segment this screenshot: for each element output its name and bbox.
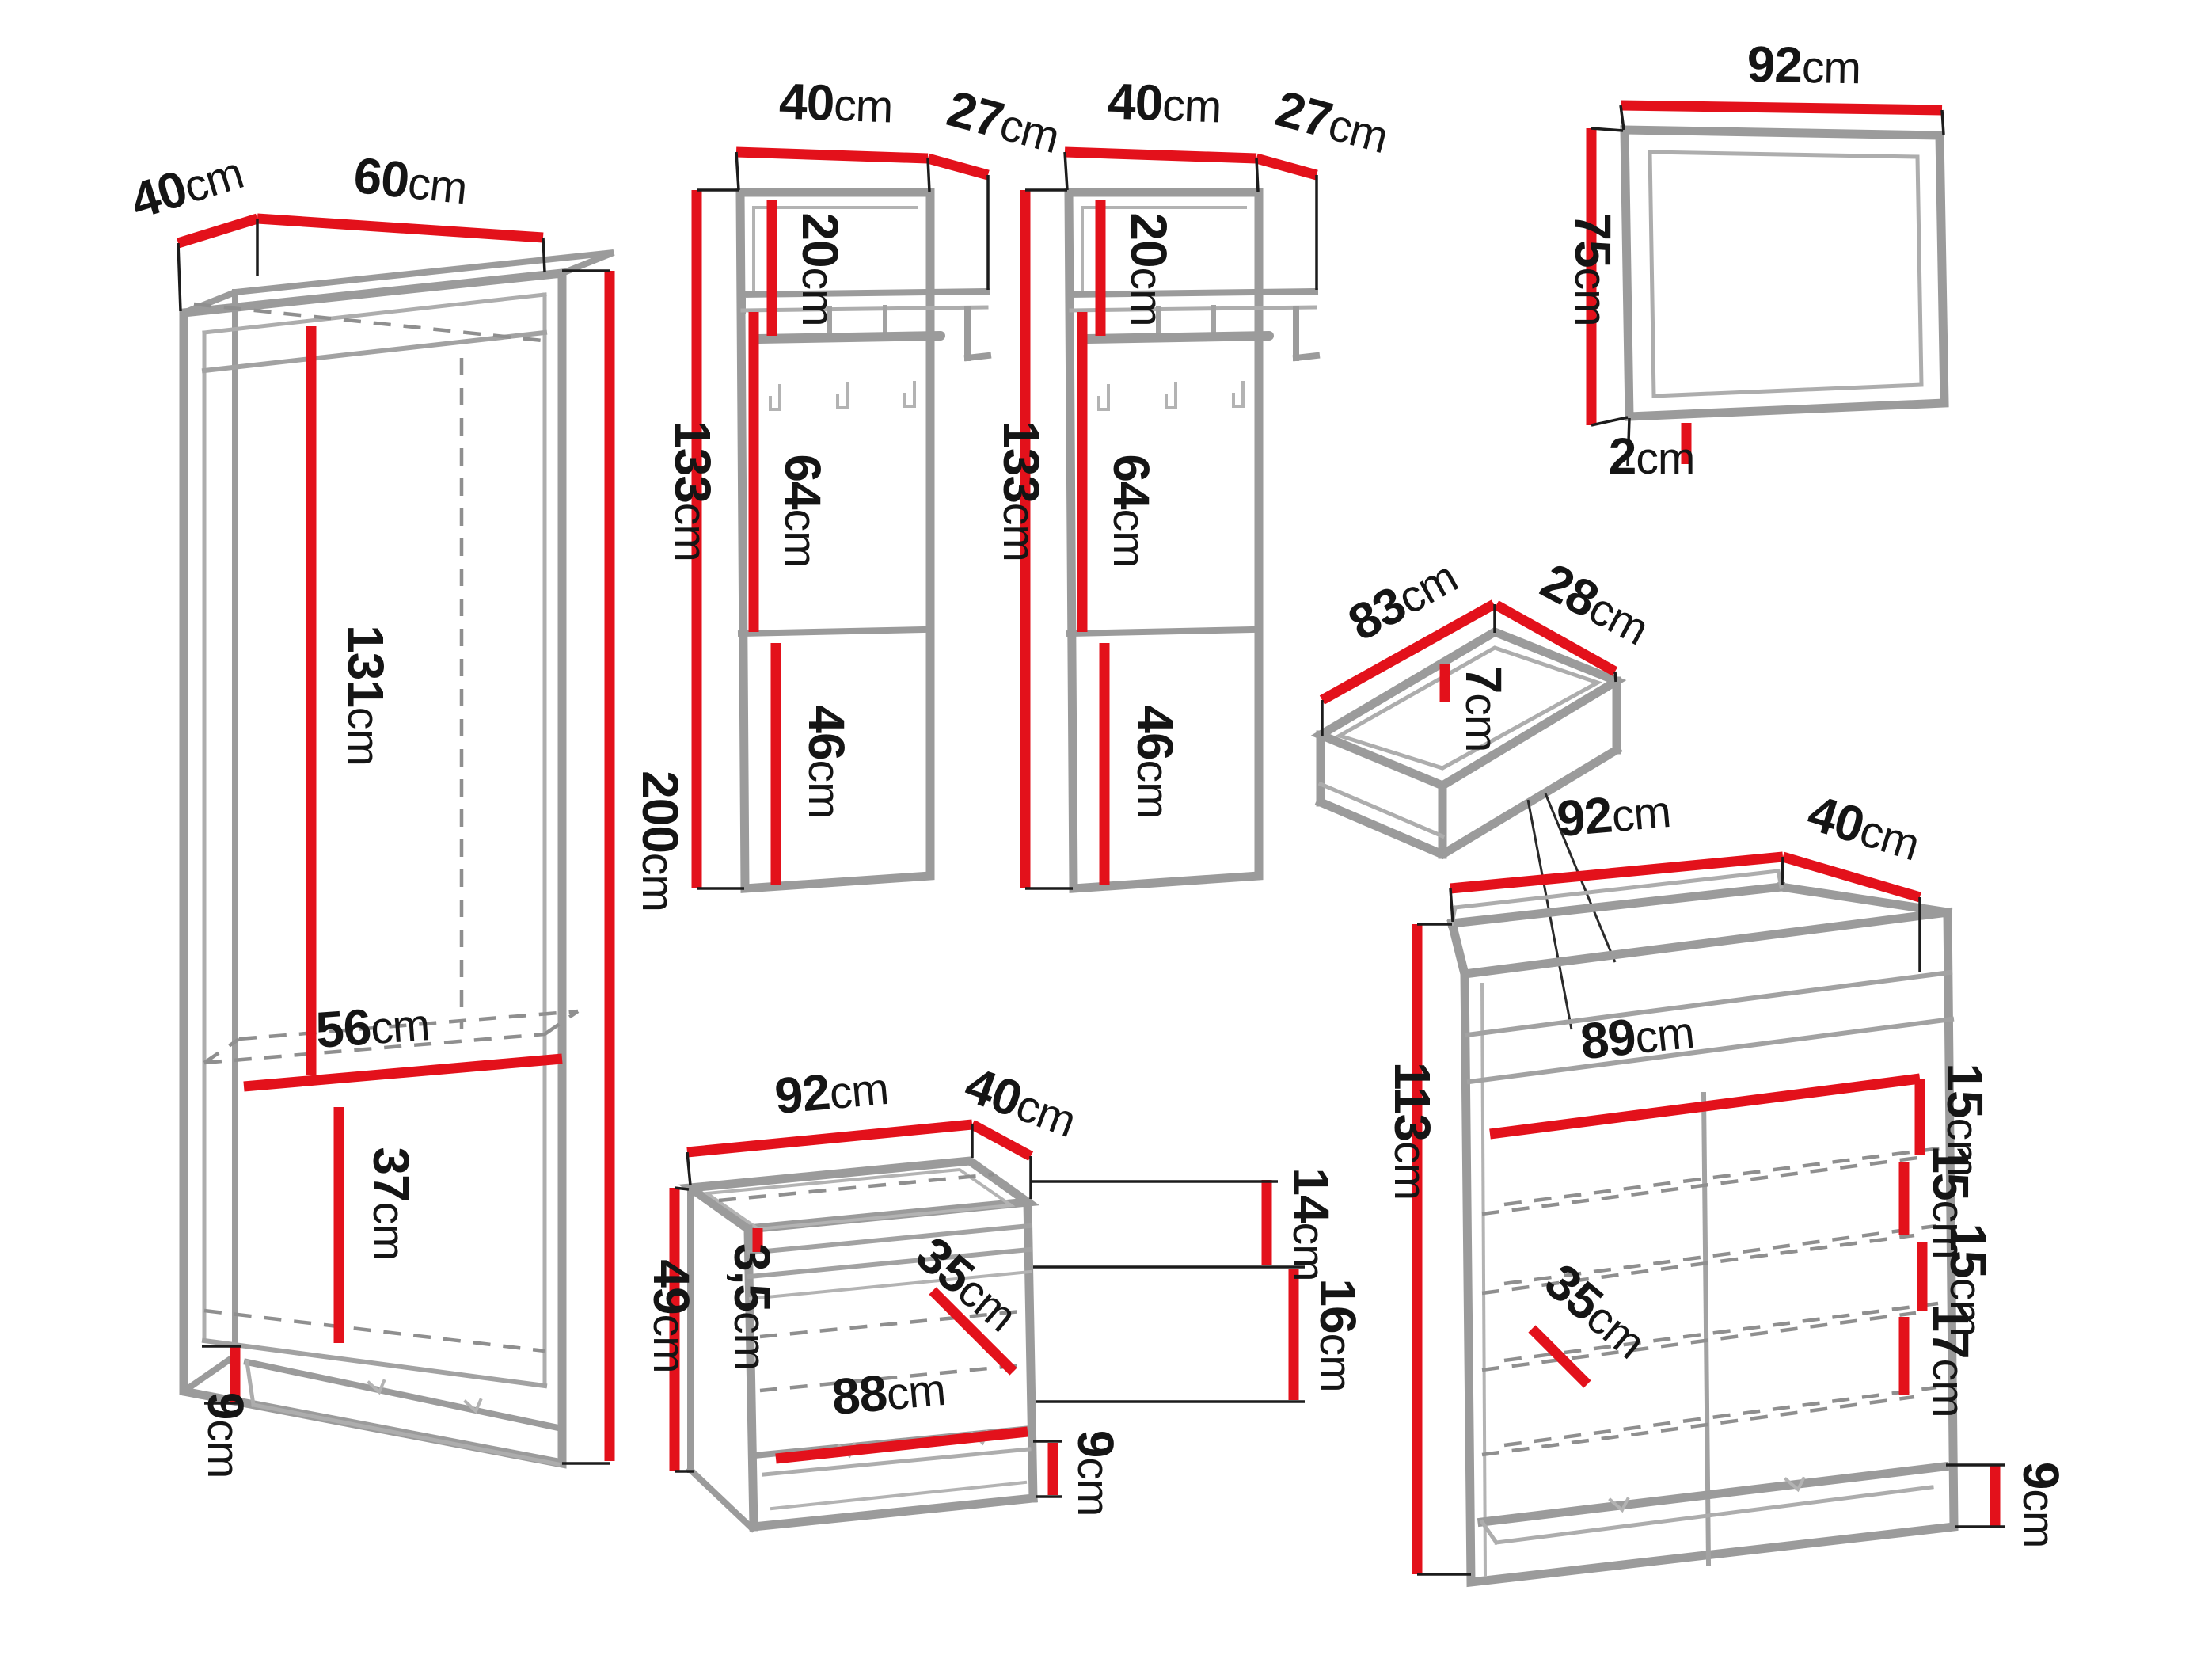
chest-height-label: 113cm <box>1384 1062 1441 1200</box>
drawer-height-label: 7cm <box>1455 666 1512 752</box>
coat-panel-1-bottom-label: 46cm <box>798 705 855 818</box>
bench-plinth-label: 9cm <box>1067 1430 1124 1516</box>
coat-panel-1-height-label: 133cm <box>664 420 721 561</box>
wardrobe-shelf-width-label: 56cm <box>314 994 431 1059</box>
bench-lower-right-label: 16cm <box>1309 1278 1366 1391</box>
mirror-outline <box>1625 130 1944 417</box>
wardrobe-width-label: 60cm <box>351 146 469 215</box>
mirror-drawing: 92cm 75cm 2cm <box>1564 36 1944 485</box>
bench-drawing: 92cm 40cm 49cm 3,5cm 14cm 16cm 35cm 88cm… <box>643 1056 1366 1528</box>
chest-depth-label: 40cm <box>1801 784 1926 872</box>
coat-panel-2-drawing: 40cm 27cm 20cm 133cm 64cm 46cm <box>993 73 1394 888</box>
chest-outline <box>1452 871 1954 1582</box>
mirror-width-label: 92cm <box>1746 36 1860 94</box>
bench-upper-right-label: 14cm <box>1283 1167 1340 1280</box>
bench-inner-width-label: 88cm <box>830 1359 948 1425</box>
mirror-height-label: 75cm <box>1564 212 1621 325</box>
wardrobe-hanging-label: 131cm <box>337 625 394 766</box>
coat-panel-2-shelf-depth-label: 27cm <box>1270 79 1394 164</box>
coat-panel-2-bottom-label: 46cm <box>1127 705 1184 818</box>
coat-panel-1-width-label: 40cm <box>778 73 894 134</box>
bench-height-label: 49cm <box>643 1259 700 1372</box>
coat-panel-2-width-label: 40cm <box>1107 73 1222 134</box>
coat-panel-1-shelf-depth-label: 27cm <box>941 79 1066 164</box>
chest-width-label: 92cm <box>1555 781 1673 847</box>
wardrobe-height-label: 200cm <box>632 771 689 911</box>
coat-panel-2-height-label: 133cm <box>993 420 1050 561</box>
chest-drawing: 92cm 40cm 113cm 89cm 15cm 15cm 15cm 17cm… <box>1384 781 2069 1582</box>
wardrobe-plinth-label: 9cm <box>197 1392 254 1478</box>
bench-depth-label: 40cm <box>958 1056 1084 1148</box>
diagram-svg: 40cm 60cm 200cm 131cm 56cm 37cm 9cm <box>0 0 2212 1659</box>
wardrobe-lower-label: 37cm <box>363 1147 420 1260</box>
coat-panel-2-top-label: 20cm <box>1120 212 1177 325</box>
coat-panel-1-top-label: 20cm <box>792 212 849 325</box>
wardrobe-depth-label: 40cm <box>124 143 249 230</box>
chest-plinth-label: 9cm <box>2012 1462 2069 1548</box>
chest-shelf4-label: 17cm <box>1922 1303 1979 1417</box>
bench-width-label: 92cm <box>773 1058 891 1124</box>
coat-panel-2-middle-label: 64cm <box>1103 454 1160 567</box>
wardrobe-outline <box>184 253 614 1464</box>
wardrobe-drawing: 40cm 60cm 200cm 131cm 56cm 37cm 9cm <box>124 143 689 1478</box>
furniture-dimensions-diagram: 40cm 60cm 200cm 131cm 56cm 37cm 9cm <box>0 0 2212 1659</box>
bench-seat-thickness-label: 3,5cm <box>724 1243 781 1370</box>
mirror-depth-label: 2cm <box>1609 428 1695 485</box>
coat-panel-1-middle-label: 64cm <box>774 454 831 567</box>
